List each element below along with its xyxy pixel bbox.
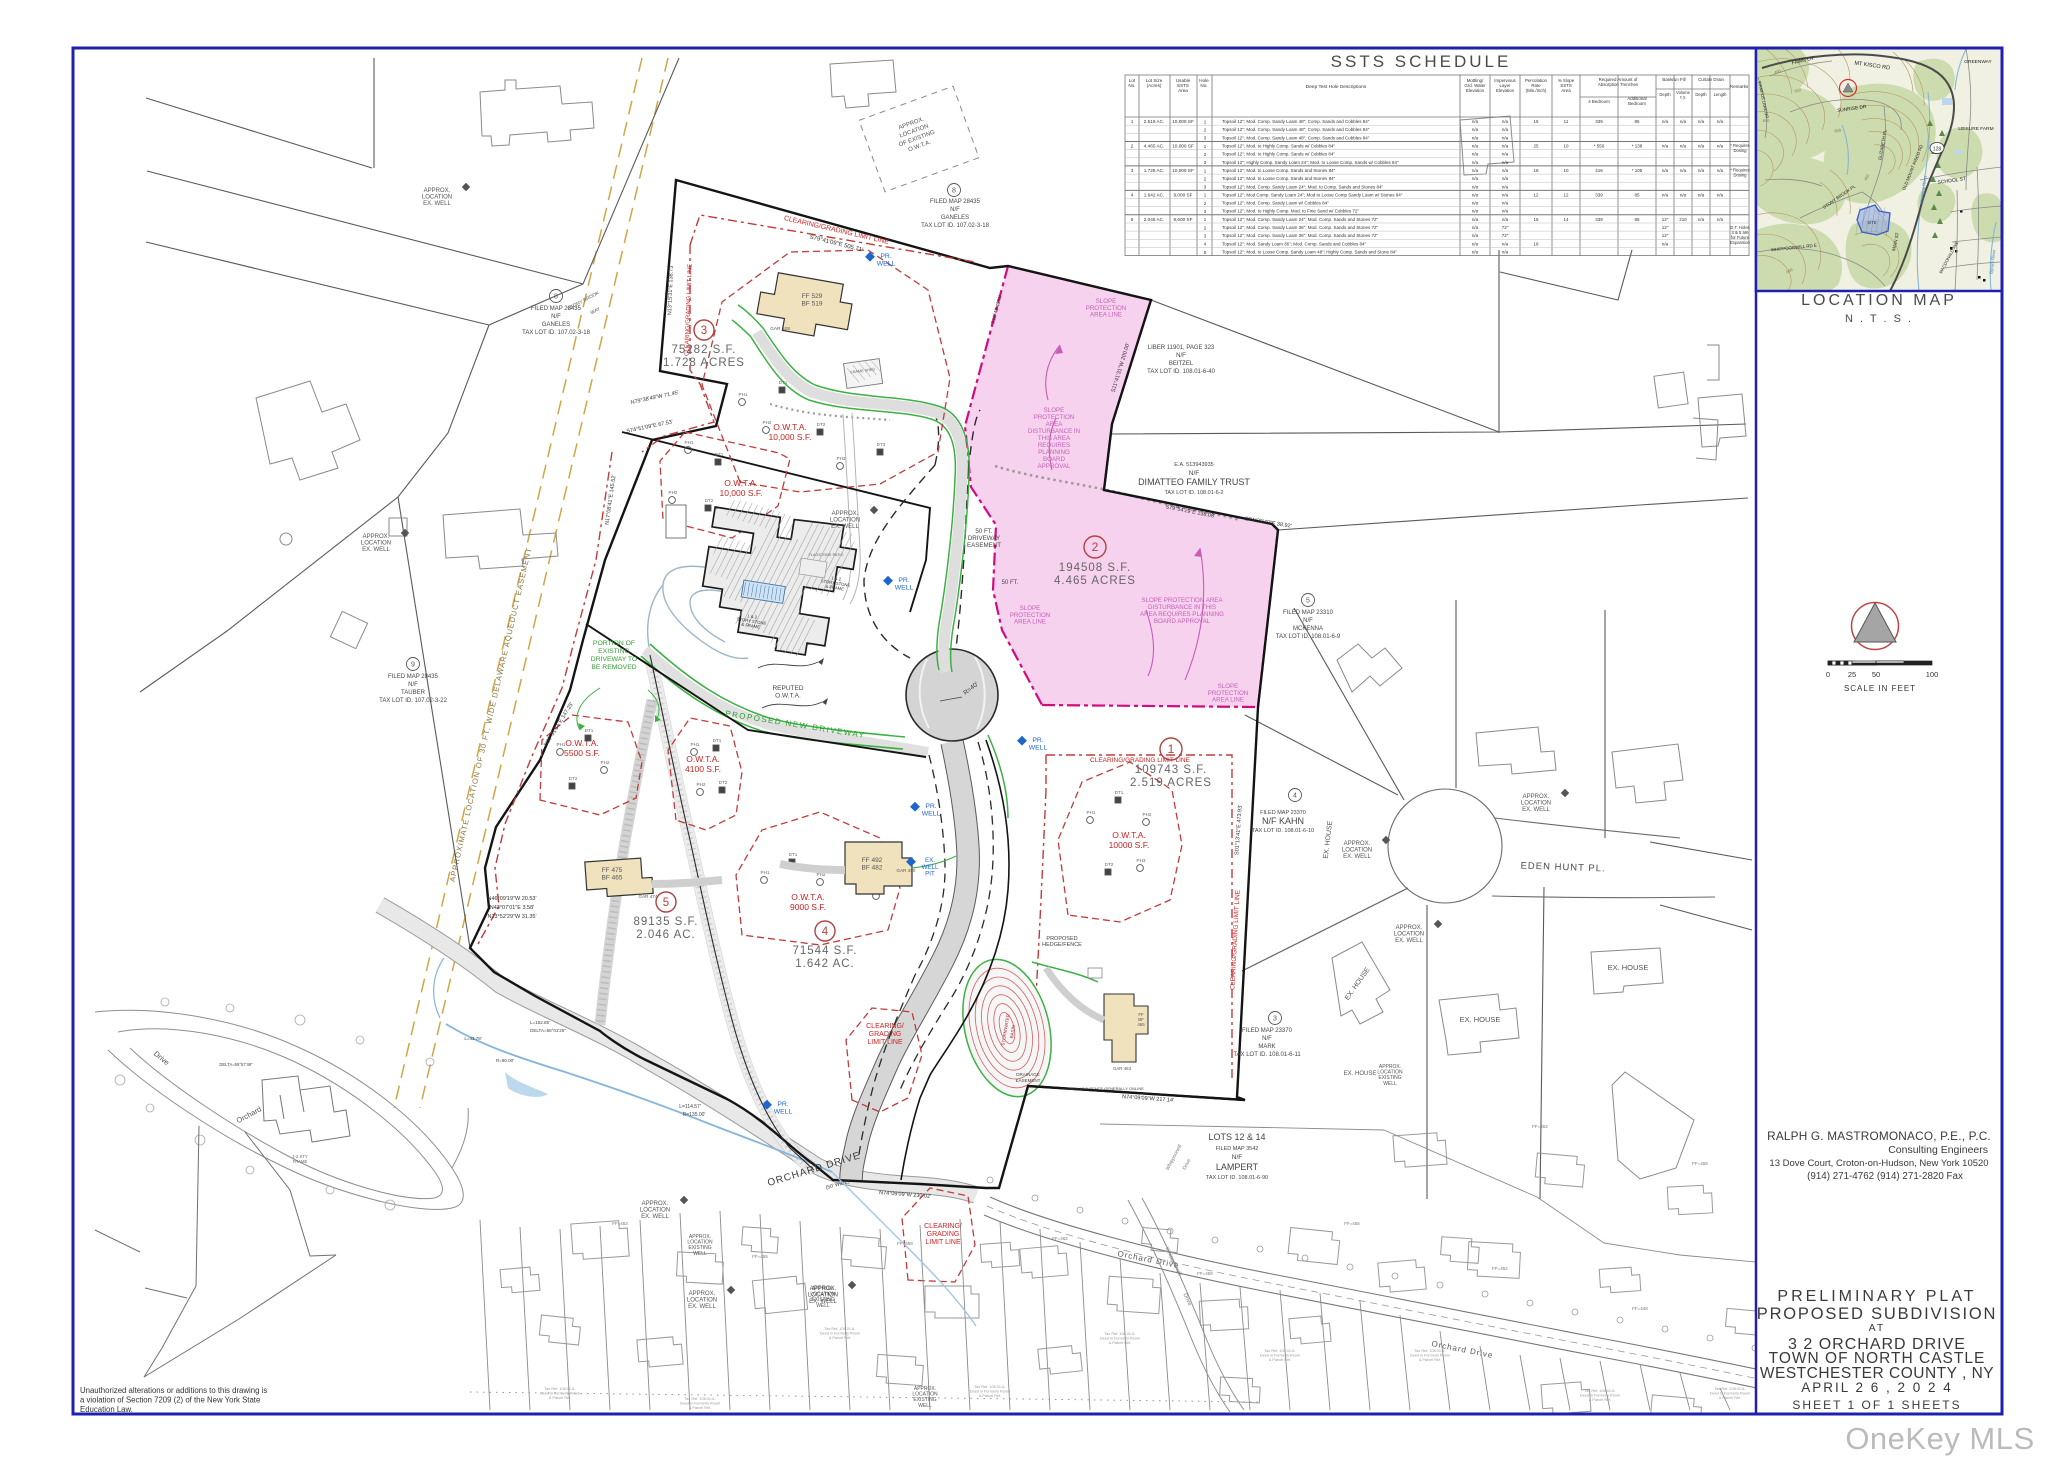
svg-text:WELL: WELL — [693, 1251, 707, 1257]
svg-text:TAX LOT ID. 108.01-6-10: TAX LOT ID. 108.01-6-10 — [1252, 828, 1314, 834]
svg-text:E.A. 513943935: E.A. 513943935 — [1174, 462, 1213, 468]
svg-text:REQUIRES: REQUIRES — [1038, 442, 1070, 449]
svg-text:n/a: n/a — [1472, 119, 1479, 124]
svg-text:10000 S.F.: 10000 S.F. — [1109, 840, 1150, 850]
svg-text:5: 5 — [663, 897, 669, 909]
svg-text:Remarks: Remarks — [1730, 84, 1749, 89]
svg-text:* 550: * 550 — [1594, 144, 1605, 149]
svg-text:FF=458: FF=458 — [1197, 1271, 1213, 1276]
svg-text:R=90.00': R=90.00' — [496, 1058, 514, 1063]
svg-text:2.519 ACRES: 2.519 ACRES — [1130, 777, 1212, 789]
svg-text:n/a: n/a — [1502, 192, 1509, 197]
svg-text:SHEET 1 OF 1 SHEETS: SHEET 1 OF 1 SHEETS — [1792, 1398, 1961, 1412]
svg-text:50: 50 — [1872, 670, 1880, 679]
svg-text:DT3: DT3 — [877, 442, 886, 447]
svg-text:Tax Ref. 108.01-6-: Tax Ref. 108.01-6- — [1714, 1387, 1746, 1391]
svg-text:18: 18 — [1533, 168, 1539, 173]
svg-text:TAX LOT ID. 108.01-6-9: TAX LOT ID. 108.01-6-9 — [1276, 634, 1341, 640]
svg-text:WELL: WELL — [816, 1303, 830, 1309]
svg-text:CLEARING/: CLEARING/ — [866, 1023, 904, 1030]
svg-text:DELTA=58°01'25": DELTA=58°01'25" — [530, 1028, 566, 1033]
svg-text:9,600 SF: 9,600 SF — [1173, 217, 1192, 222]
svg-text:4.465 ACRES: 4.465 ACRES — [1054, 575, 1136, 587]
svg-text:1: 1 — [1131, 119, 1134, 124]
svg-text:REPUTED: REPUTED — [772, 685, 803, 692]
svg-text:LOCATION: LOCATION — [1521, 801, 1551, 807]
svg-text:(Acres): (Acres) — [1147, 83, 1162, 88]
svg-text:Topsoil 12"; Mod. Comp. Sandy: Topsoil 12"; Mod. Comp. Sandy Loam 36"; … — [1222, 233, 1379, 238]
svg-text:128: 128 — [1933, 147, 1942, 153]
svg-text:Deed in Formerly Room: Deed in Formerly Room — [1100, 1336, 1140, 1340]
svg-text:Depth: Depth — [1695, 92, 1707, 97]
svg-text:n/a: n/a — [1472, 249, 1479, 254]
svg-text:N/F: N/F — [1303, 618, 1313, 624]
svg-text:FLAGSTONE PATIO: FLAGSTONE PATIO — [809, 553, 844, 557]
svg-text:Curtain Drain: Curtain Drain — [1698, 77, 1724, 82]
svg-text:FF=453: FF=453 — [612, 1221, 628, 1226]
svg-text:FF 475: FF 475 — [602, 867, 623, 874]
svg-text:WELL: WELL — [895, 585, 914, 592]
svg-text:WELL: WELL — [922, 811, 941, 818]
svg-text:DT1: DT1 — [1115, 790, 1124, 795]
svg-text:OneKey MLS: OneKey MLS — [1845, 1421, 2034, 1456]
svg-text:n/a: n/a — [1680, 168, 1687, 173]
svg-text:n/a: n/a — [1502, 217, 1509, 222]
svg-text:PH1: PH1 — [739, 392, 748, 397]
svg-text:89135 S.F.: 89135 S.F. — [634, 916, 699, 928]
svg-text:N/F: N/F — [1176, 353, 1186, 359]
svg-text:AREA LINE: AREA LINE — [1090, 312, 1122, 319]
svg-text:1.728 ACRES: 1.728 ACRES — [663, 357, 745, 369]
svg-text:12": 12" — [1662, 217, 1669, 222]
svg-text:n/a: n/a — [1662, 241, 1669, 246]
svg-text:n/a: n/a — [1502, 144, 1509, 149]
svg-text:N23°52'29"W 31.35': N23°52'29"W 31.35' — [487, 914, 536, 920]
svg-text:* 105: * 105 — [1632, 168, 1643, 173]
svg-text:n/a: n/a — [1502, 201, 1509, 206]
svg-text:LOTS 12 & 14: LOTS 12 & 14 — [1208, 1132, 1265, 1142]
svg-text:Elevation: Elevation — [1496, 88, 1515, 93]
svg-text:50 FT.: 50 FT. — [975, 528, 992, 535]
svg-text:n/a: n/a — [1502, 184, 1509, 189]
svg-text:Tax Ref. 108.01-6-: Tax Ref. 108.01-6- — [1264, 1349, 1296, 1353]
svg-text:Expansion: Expansion — [1730, 240, 1750, 245]
svg-text:4 Bedroom: 4 Bedroom — [1588, 99, 1610, 104]
svg-text:Tax Ref. 108.01-6-: Tax Ref. 108.01-6- — [1584, 1389, 1616, 1393]
svg-text:FILED MAP 3542: FILED MAP 3542 — [1216, 1146, 1259, 1152]
svg-text:DT1: DT1 — [585, 728, 594, 733]
svg-text:FF=455: FF=455 — [1344, 1221, 1360, 1226]
svg-text:Consulting Engineers: Consulting Engineers — [1888, 1144, 1988, 1156]
svg-text:SSTS SCHEDULE: SSTS SCHEDULE — [1331, 52, 1512, 71]
svg-text:n/a: n/a — [1662, 119, 1669, 124]
svg-text:PH1: PH1 — [691, 742, 700, 747]
svg-text:BOARD: BOARD — [1043, 456, 1066, 463]
svg-text:Topsoil 12"; Mod. to Loose Com: Topsoil 12"; Mod. to Loose Comp. Sandy L… — [1222, 249, 1397, 254]
svg-text:2: 2 — [1092, 540, 1099, 554]
svg-text:FF=458: FF=458 — [1692, 1161, 1708, 1166]
svg-text:416: 416 — [1595, 168, 1603, 173]
svg-text:Deed in Formerly Room: Deed in Formerly Room — [540, 1391, 580, 1395]
svg-text:TAX LOT ID. 107.02-3-18: TAX LOT ID. 107.02-3-18 — [522, 330, 590, 336]
svg-text:PR.: PR. — [880, 253, 891, 260]
svg-text:MCKENNA: MCKENNA — [1293, 626, 1323, 632]
svg-text:PRELIMINARY PLAT: PRELIMINARY PLAT — [1777, 1288, 1976, 1305]
svg-text:109743 S.F.: 109743 S.F. — [1135, 764, 1207, 776]
svg-text:n/a: n/a — [1472, 209, 1479, 214]
svg-text:PH1: PH1 — [685, 440, 694, 445]
svg-text:12": 12" — [1662, 233, 1669, 238]
svg-text:& Parcel Ref.: & Parcel Ref. — [689, 1406, 711, 1410]
svg-text:n/a: n/a — [1472, 184, 1479, 189]
svg-text:SLOPE: SLOPE — [1044, 407, 1065, 414]
svg-text:n/a: n/a — [1698, 192, 1705, 197]
svg-text:SLOPE PROTECTION AREA: SLOPE PROTECTION AREA — [1141, 597, 1223, 604]
svg-text:DT2: DT2 — [1105, 862, 1114, 867]
svg-text:Bedroom: Bedroom — [1628, 101, 1646, 106]
svg-text:BOARD APPROVAL: BOARD APPROVAL — [1154, 618, 1211, 625]
svg-text:EX. HOUSE: EX. HOUSE — [1460, 1015, 1501, 1024]
svg-text:BF 519: BF 519 — [802, 301, 823, 308]
svg-text:AREA REQUIRES PLANNING: AREA REQUIRES PLANNING — [1140, 611, 1224, 618]
svg-text:DRIVEWAY TO: DRIVEWAY TO — [591, 656, 637, 663]
svg-text:PH2: PH2 — [697, 782, 706, 787]
svg-text:PH1: PH1 — [761, 870, 770, 875]
svg-text:n/a: n/a — [1502, 160, 1509, 165]
svg-text:N46°09'19"W 20.53': N46°09'19"W 20.53' — [487, 896, 536, 902]
svg-text:FILED MAP 28435: FILED MAP 28435 — [930, 199, 981, 205]
svg-text:n/a: n/a — [1502, 176, 1509, 181]
svg-text:APRIL 2 6 , 2 0 2 4: APRIL 2 6 , 2 0 2 4 — [1801, 1380, 1953, 1395]
svg-text:LOCATION: LOCATION — [1394, 932, 1424, 938]
svg-text:FF=448: FF=448 — [1632, 1306, 1648, 1311]
svg-text:EX. WELL: EX. WELL — [1522, 807, 1550, 813]
svg-text:n/a: n/a — [1698, 217, 1705, 222]
svg-text:GREENWAY: GREENWAY — [1964, 59, 1992, 65]
svg-text:AREA LINE: AREA LINE — [1212, 697, 1244, 704]
svg-text:13 Dove Court, Croton-on-Hudso: 13 Dove Court, Croton-on-Hudson, New Yor… — [1769, 1158, 1988, 1169]
svg-text:11: 11 — [1564, 119, 1569, 124]
svg-text:PH2: PH2 — [601, 760, 610, 765]
svg-text:Deed in Formerly Room: Deed in Formerly Room — [1260, 1353, 1300, 1357]
svg-text:DIMATTEO FAMILY TRUST: DIMATTEO FAMILY TRUST — [1138, 477, 1250, 487]
svg-text:9: 9 — [411, 662, 415, 669]
svg-text:1: 1 — [1168, 742, 1175, 756]
svg-text:12": 12" — [1662, 225, 1669, 230]
svg-text:DT2: DT2 — [569, 776, 578, 781]
svg-text:n/a: n/a — [1472, 225, 1479, 230]
svg-text:18: 18 — [1533, 241, 1539, 246]
svg-text:* 138: * 138 — [1632, 144, 1643, 149]
svg-text:FF=452: FF=452 — [1492, 1266, 1508, 1271]
svg-text:L=43.78': L=43.78' — [464, 1036, 481, 1041]
svg-text:FF=455: FF=455 — [752, 1254, 768, 1259]
svg-text:EX. WELL: EX. WELL — [1343, 854, 1371, 860]
svg-text:3: 3 — [701, 325, 707, 337]
svg-text:339: 339 — [1595, 192, 1603, 197]
svg-text:5500 S.F.: 5500 S.F. — [564, 748, 600, 758]
svg-text:10: 10 — [1563, 168, 1569, 173]
svg-text:N/F: N/F — [551, 314, 561, 320]
svg-text:GAR 490: GAR 490 — [897, 868, 916, 873]
svg-text:1.728 AC.: 1.728 AC. — [1144, 168, 1165, 173]
svg-text:FILED MAP 23370: FILED MAP 23370 — [1242, 1028, 1293, 1034]
svg-text:PR.: PR. — [898, 577, 909, 584]
svg-text:n/a: n/a — [1502, 168, 1509, 173]
svg-text:85: 85 — [1634, 119, 1640, 124]
svg-text:DRIVEWAY: DRIVEWAY — [968, 535, 1000, 542]
svg-text:n/a: n/a — [1472, 217, 1479, 222]
svg-text:Topsoil 12"; Mod. to Highly Co: Topsoil 12"; Mod. to Highly Comp. Sands … — [1222, 144, 1335, 149]
svg-text:n/a: n/a — [1502, 209, 1509, 214]
svg-text:85: 85 — [1634, 217, 1640, 222]
svg-text:GRADING: GRADING — [869, 1031, 902, 1038]
svg-text:5: 5 — [1131, 217, 1134, 222]
svg-text:n/a: n/a — [1472, 241, 1479, 246]
svg-text:(Min./Inch): (Min./Inch) — [1526, 88, 1547, 93]
svg-text:N/F: N/F — [408, 682, 418, 688]
svg-text:GAR 463: GAR 463 — [1113, 1066, 1132, 1071]
svg-text:FF 492: FF 492 — [862, 857, 883, 864]
svg-text:FILED MAP 28435: FILED MAP 28435 — [388, 674, 439, 680]
svg-text:n/a: n/a — [1717, 192, 1724, 197]
svg-text:N . T . S .: N . T . S . — [1845, 313, 1913, 325]
svg-text:WELL: WELL — [774, 1109, 793, 1116]
svg-text:n/a: n/a — [1502, 241, 1509, 246]
svg-text:CLEARING/: CLEARING/ — [924, 1223, 962, 1230]
svg-text:72": 72" — [1502, 233, 1509, 238]
svg-text:& Parcel Ref.: & Parcel Ref. — [1419, 1358, 1441, 1362]
svg-text:AT: AT — [1869, 1322, 1886, 1334]
svg-text:EASEMENT: EASEMENT — [1016, 1078, 1041, 1083]
svg-text:DT2: DT2 — [719, 780, 728, 785]
svg-text:Topsoil 12"; Mod. to Highly Co: Topsoil 12"; Mod. to Highly Comp. Mod. t… — [1222, 209, 1359, 214]
svg-text:GAR 474: GAR 474 — [639, 894, 658, 899]
svg-text:Deed in Formerly Room: Deed in Formerly Room — [680, 1401, 720, 1405]
svg-text:GRADING: GRADING — [927, 1231, 960, 1238]
svg-text:72": 72" — [1502, 225, 1509, 230]
svg-text:Topsoil 12"; Mod. to Loose Com: Topsoil 12"; Mod. to Loose Comp. Sands a… — [1222, 168, 1336, 173]
svg-text:Elevation: Elevation — [1466, 88, 1485, 93]
svg-text:1.642 AC.: 1.642 AC. — [795, 958, 855, 970]
svg-text:15: 15 — [1533, 119, 1539, 124]
svg-text:n/a: n/a — [1698, 168, 1705, 173]
svg-text:n/a: n/a — [1717, 168, 1724, 173]
svg-text:n/a: n/a — [1472, 176, 1479, 181]
svg-text:n/a: n/a — [1680, 192, 1687, 197]
svg-text:12: 12 — [1563, 192, 1569, 197]
svg-text:15: 15 — [1533, 217, 1539, 222]
svg-text:12: 12 — [1533, 192, 1539, 197]
svg-text:50 FT.: 50 FT. — [1002, 580, 1019, 586]
svg-text:n/a: n/a — [1502, 249, 1509, 254]
svg-text:n/a: n/a — [1472, 160, 1479, 165]
svg-text:Deed in Formerly Room: Deed in Formerly Room — [970, 1389, 1010, 1393]
svg-text:APPROX.: APPROX. — [1396, 925, 1423, 931]
svg-text:BF 465: BF 465 — [602, 875, 623, 882]
svg-text:n/a: n/a — [1472, 201, 1479, 206]
svg-text:PH1: PH1 — [1087, 810, 1096, 815]
svg-text:Topsoil 12"; Mod Comp. Sandy L: Topsoil 12"; Mod Comp. Sandy Loam 24"; M… — [1222, 192, 1403, 197]
svg-text:TAUBER: TAUBER — [401, 690, 426, 696]
svg-text:Tax Ref. 108.01-6-: Tax Ref. 108.01-6- — [974, 1385, 1006, 1389]
svg-text:WELL: WELL — [918, 1403, 932, 1409]
svg-text:No.: No. — [1128, 83, 1135, 88]
svg-text:0: 0 — [1826, 670, 1830, 679]
svg-text:LOCATION: LOCATION — [422, 195, 452, 201]
svg-text:TAX LOT ID. 108.01-6-2: TAX LOT ID. 108.01-6-2 — [1164, 490, 1223, 496]
svg-text:EX. HOUSE: EX. HOUSE — [1344, 1071, 1377, 1077]
svg-text:5: 5 — [1306, 598, 1310, 605]
svg-text:EX. WELL: EX. WELL — [423, 201, 451, 207]
svg-text:PH2: PH2 — [669, 490, 678, 495]
svg-text:n/a: n/a — [1472, 127, 1479, 132]
svg-text:APPROX.: APPROX. — [1523, 794, 1550, 800]
svg-text:O.W.T.A.: O.W.T.A. — [775, 693, 801, 700]
svg-text:& Parcel Ref.: & Parcel Ref. — [1269, 1358, 1291, 1362]
svg-text:PR.: PR. — [925, 803, 936, 810]
svg-text:PH2: PH2 — [763, 420, 772, 425]
svg-text:9000 S.F.: 9000 S.F. — [790, 902, 826, 912]
svg-text:n/a: n/a — [1502, 135, 1509, 140]
svg-text:25: 25 — [1848, 670, 1856, 679]
svg-text:10,000 SF: 10,000 SF — [1172, 144, 1194, 149]
svg-text:Topsoil 12"; Mod. Comp. Sandy: Topsoil 12"; Mod. Comp. Sandy Loam 48"; … — [1222, 119, 1370, 124]
svg-text:PH2: PH2 — [1143, 812, 1152, 817]
svg-text:Absorption Trenches: Absorption Trenches — [1598, 82, 1639, 87]
svg-text:L=114.57': L=114.57' — [679, 1104, 701, 1110]
svg-text:& Parcel Ref.: & Parcel Ref. — [549, 1396, 571, 1400]
svg-text:TAX LOT ID. 108.01-6-40: TAX LOT ID. 108.01-6-40 — [1147, 369, 1215, 375]
svg-text:APPROX.: APPROX. — [642, 1201, 669, 1207]
svg-text:BEITZEL: BEITZEL — [1169, 361, 1194, 367]
svg-text:BE REMOVED: BE REMOVED — [591, 664, 636, 671]
svg-text:100: 100 — [1926, 670, 1939, 679]
svg-text:1.642 AC.: 1.642 AC. — [1144, 193, 1165, 198]
svg-text:PLANNING: PLANNING — [1038, 449, 1070, 456]
svg-text:CLEARING/GRADING LIMIT LINE: CLEARING/GRADING LIMIT LINE — [1090, 757, 1191, 764]
svg-text:4.465 AC.: 4.465 AC. — [1144, 144, 1165, 149]
svg-text:& Parcel Ref.: & Parcel Ref. — [979, 1394, 1001, 1398]
svg-text:Tax Ref. 108.01-6-: Tax Ref. 108.01-6- — [1414, 1349, 1446, 1353]
svg-text:8: 8 — [952, 188, 956, 195]
svg-text:465: 465 — [1137, 1022, 1145, 1027]
svg-text:LOCATION: LOCATION — [640, 1208, 670, 1214]
svg-text:Unauthorized alterations or: Unauthorized alterations or additions to… — [80, 1386, 267, 1395]
svg-text:Topsoil 12"; Mod. Comp. Sandy: Topsoil 12"; Mod. Comp. Sandy Loam 48"; … — [1222, 127, 1370, 132]
svg-text:n/a: n/a — [1472, 135, 1479, 140]
svg-text:APPROX.: APPROX. — [424, 188, 451, 194]
svg-text:TAX LOT ID. 107.02-3-22: TAX LOT ID. 107.02-3-22 — [379, 698, 447, 704]
svg-text:10,000 SF: 10,000 SF — [1172, 119, 1194, 124]
svg-text:4100 S.F.: 4100 S.F. — [685, 764, 721, 774]
svg-text:(914) 271-4762 (914) 271-28: (914) 271-4762 (914) 271-2820 Fax — [1807, 1171, 1963, 1182]
svg-text:LOCATION: LOCATION — [830, 518, 860, 524]
svg-text:10: 10 — [1563, 144, 1569, 149]
svg-text:LOCATION: LOCATION — [361, 541, 391, 547]
svg-text:FF=462: FF=462 — [1052, 1236, 1068, 1241]
svg-text:PORTION OF: PORTION OF — [593, 640, 635, 647]
svg-text:9,000 SF: 9,000 SF — [1173, 193, 1192, 198]
svg-text:Topsoil 12"; Mod. Comp. Sandy: Topsoil 12"; Mod. Comp. Sandy Loam 48"; … — [1222, 135, 1370, 140]
svg-text:LOCATION: LOCATION — [1342, 848, 1372, 854]
svg-text:Bankrun Fill: Bankrun Fill — [1662, 77, 1685, 82]
svg-text:THIS AREA: THIS AREA — [1038, 435, 1071, 442]
svg-text:N/F KAHN: N/F KAHN — [1262, 816, 1304, 826]
svg-text:TAX LOT ID. 108.01-6-11: TAX LOT ID. 108.01-6-11 — [1233, 1052, 1301, 1058]
svg-text:& Parcel Ref.: & Parcel Ref. — [829, 1336, 851, 1340]
svg-text:Dosing: Dosing — [1733, 172, 1747, 177]
svg-text:2.519 AC.: 2.519 AC. — [1144, 119, 1165, 124]
svg-text:n/a: n/a — [1717, 119, 1724, 124]
svg-text:No.: No. — [1200, 83, 1207, 88]
svg-text:DT1: DT1 — [789, 852, 798, 857]
svg-text:EXISTING: EXISTING — [598, 648, 630, 655]
svg-text:Topsoil 12"; Mod. Comp. Sandy: Topsoil 12"; Mod. Comp. Sandy Loam w/ Co… — [1222, 201, 1329, 206]
svg-text:Deed in Formerly Room: Deed in Formerly Room — [1410, 1353, 1450, 1357]
svg-text:FRAME: FRAME — [293, 1159, 308, 1164]
svg-text:Dosing: Dosing — [1733, 148, 1747, 153]
svg-text:Tax Ref. 108.01-6-: Tax Ref. 108.01-6- — [824, 1327, 856, 1331]
svg-text:n/a: n/a — [1502, 127, 1509, 132]
svg-text:n/a: n/a — [1680, 119, 1687, 124]
svg-text:n/a: n/a — [1717, 144, 1724, 149]
svg-text:Topsoil 12"; Mod. to Loose Com: Topsoil 12"; Mod. to Loose Comp. Sands a… — [1222, 176, 1336, 181]
svg-text:Deed in Formerly Room: Deed in Formerly Room — [1580, 1393, 1620, 1397]
svg-text:EX. WELL: EX. WELL — [688, 1304, 716, 1310]
svg-text:N/F: N/F — [1262, 1036, 1272, 1042]
svg-text:APPROX.: APPROX. — [832, 511, 859, 517]
svg-text:Deep Test Hole Descriptions: Deep Test Hole Descriptions — [1306, 84, 1367, 90]
svg-text:& Parcel Ref.: & Parcel Ref. — [1719, 1396, 1741, 1400]
svg-text:LOCATION MAP: LOCATION MAP — [1801, 292, 1957, 309]
svg-text:Tax Ref. 108.01-6-: Tax Ref. 108.01-6- — [1104, 1332, 1136, 1336]
svg-text:PROTECTION: PROTECTION — [1034, 414, 1075, 421]
svg-text:N/F: N/F — [1189, 470, 1200, 477]
svg-text:4: 4 — [1131, 193, 1134, 198]
svg-text:O.W.T.A.: O.W.T.A. — [686, 754, 720, 764]
svg-text:WELL: WELL — [1029, 745, 1048, 752]
svg-text:O.W.T.A.: O.W.T.A. — [773, 422, 807, 432]
svg-text:n/a: n/a — [1680, 144, 1687, 149]
svg-text:N/F: N/F — [950, 207, 960, 213]
svg-text:SCALE IN FEET: SCALE IN FEET — [1844, 684, 1916, 693]
svg-text:FF 529: FF 529 — [802, 293, 823, 300]
svg-text:n/a: n/a — [1662, 192, 1669, 197]
svg-text:DISTURBANCE IN THIS: DISTURBANCE IN THIS — [1148, 604, 1216, 611]
svg-text:LIMIT LINE: LIMIT LINE — [867, 1039, 903, 1046]
svg-text:MARK: MARK — [1258, 1044, 1275, 1050]
svg-text:n/a: n/a — [1472, 192, 1479, 197]
svg-text:Deed in Formerly Room: Deed in Formerly Room — [1710, 1391, 1750, 1395]
svg-text:LEISURE FARM: LEISURE FARM — [1958, 126, 1993, 132]
svg-text:71544 S.F.: 71544 S.F. — [793, 945, 858, 957]
svg-text:10,000 S.F.: 10,000 S.F. — [768, 432, 811, 442]
svg-text:n/a: n/a — [1472, 168, 1479, 173]
svg-text:FF=462: FF=462 — [1532, 1124, 1548, 1129]
svg-text:2.046 AC.: 2.046 AC. — [1144, 217, 1165, 222]
svg-text:DISTURBANCE IN: DISTURBANCE IN — [1028, 428, 1080, 435]
svg-text:LIMIT LINE: LIMIT LINE — [925, 1239, 961, 1246]
svg-text:DELTA=59°57'49": DELTA=59°57'49" — [219, 1062, 253, 1067]
svg-text:GANELES: GANELES — [941, 215, 969, 221]
svg-text:EX. WELL: EX. WELL — [362, 547, 390, 553]
svg-text:Topsoil 12"; Highly Comp. Sand: Topsoil 12"; Highly Comp. Sandy Loam 24"… — [1222, 160, 1399, 165]
svg-text:194508 S.F.: 194508 S.F. — [1059, 562, 1131, 574]
svg-text:Topsoil 12"; Mod. Comp. Sandy: Topsoil 12"; Mod. Comp. Sandy Loam 24"; … — [1222, 217, 1379, 222]
svg-text:c.y.: c.y. — [1680, 95, 1686, 100]
svg-text:DT1: DT1 — [713, 738, 722, 743]
